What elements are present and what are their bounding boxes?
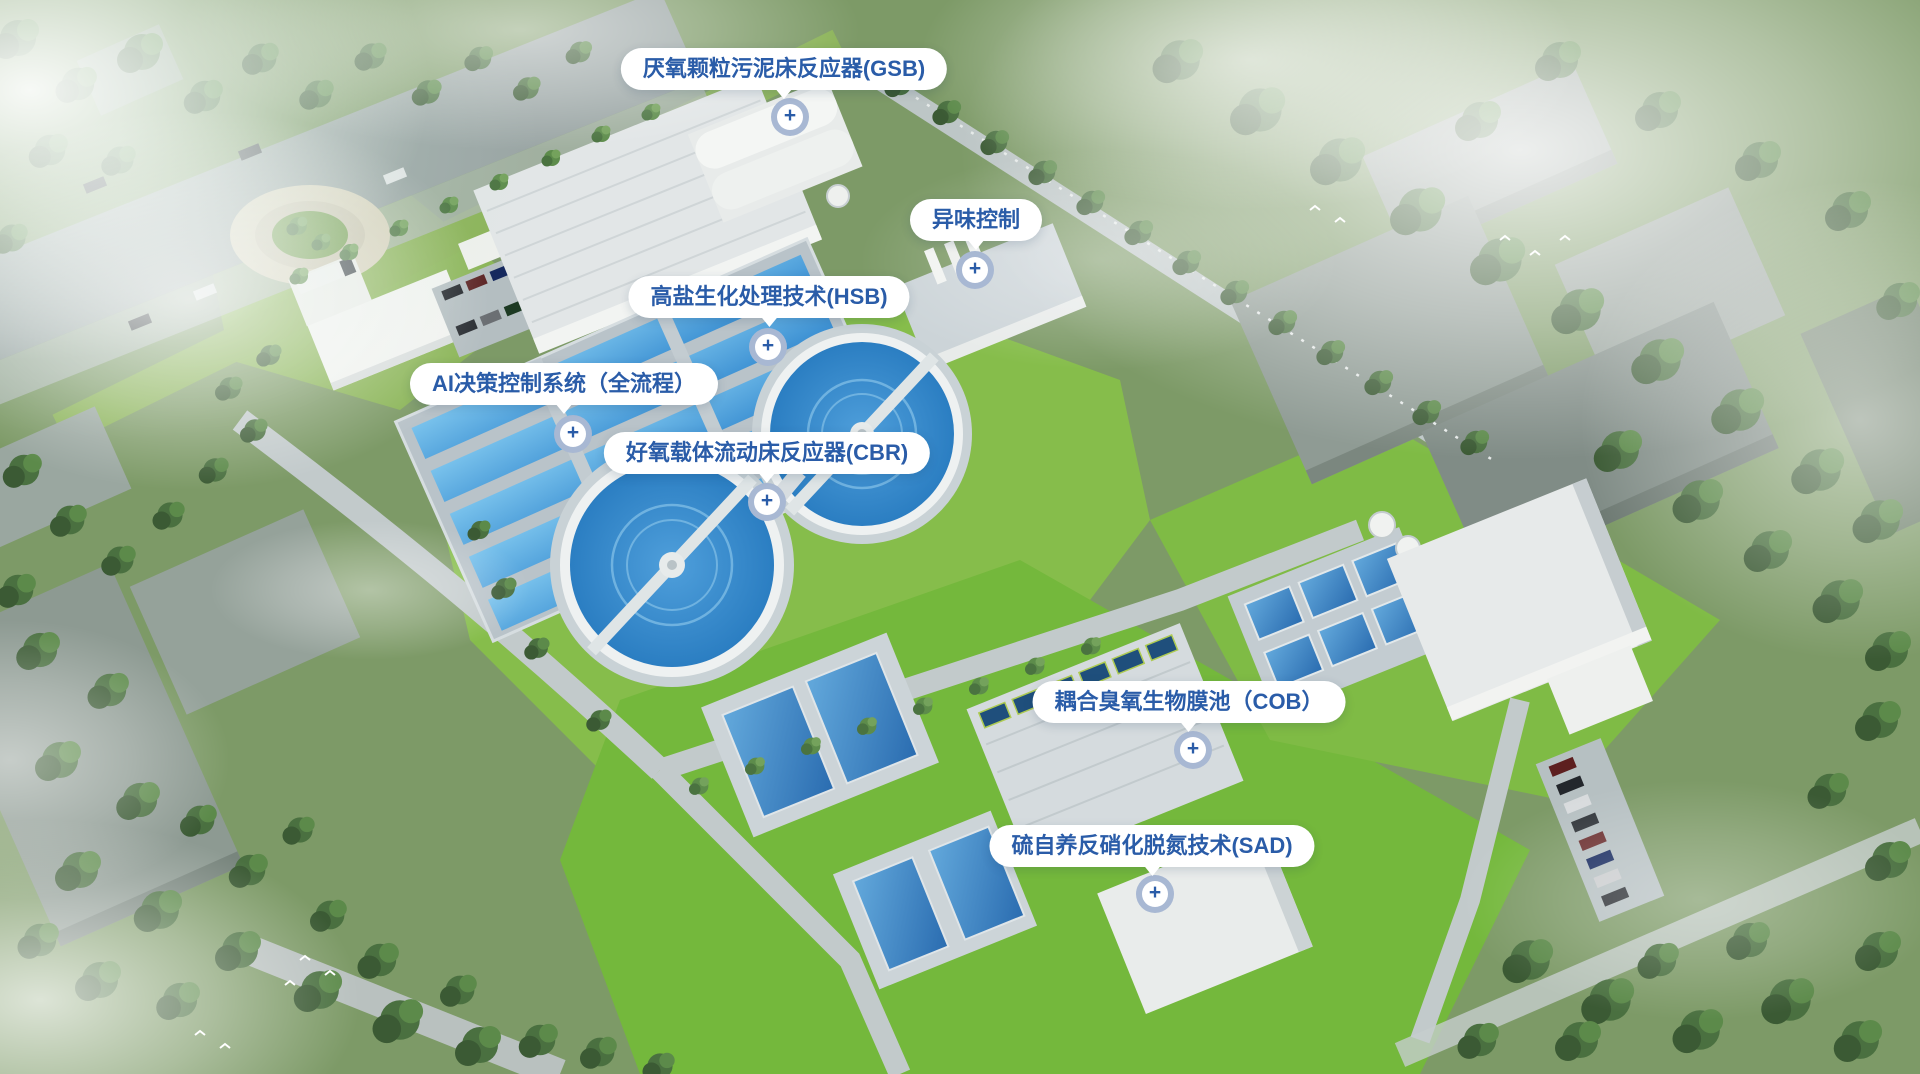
callout-marker-sad[interactable]: + (1136, 875, 1174, 913)
callout-marker-odor[interactable]: + (956, 251, 994, 289)
callout-label: AI决策控制系统（全流程） (432, 371, 696, 396)
callout-tail (760, 316, 778, 327)
callout-marker-hsb[interactable]: + (749, 328, 787, 366)
callout-label: 好氧载体流动床反应器(CBR) (626, 440, 908, 465)
callout-pill-gsb[interactable]: 厌氧颗粒污泥床反应器(GSB) (621, 48, 947, 90)
plant-3d-overview: 厌氧颗粒污泥床反应器(GSB)+异味控制+高盐生化处理技术(HSB)+AI决策控… (0, 0, 1920, 1074)
callout-tail (967, 239, 985, 250)
callout-pill-odor[interactable]: 异味控制 (910, 199, 1042, 241)
callout-pill-sad[interactable]: 硫自养反硝化脱氮技术(SAD) (989, 825, 1314, 867)
plus-icon: + (762, 334, 774, 358)
callout-label: 耦合臭氧生物膜池（COB） (1055, 689, 1324, 714)
callout-pill-ai[interactable]: AI决策控制系统（全流程） (410, 363, 718, 405)
callout-label: 异味控制 (932, 207, 1020, 232)
plus-icon: + (784, 104, 796, 128)
callout-marker-cob[interactable]: + (1174, 731, 1212, 769)
callout-label: 厌氧颗粒污泥床反应器(GSB) (643, 56, 925, 81)
plus-icon: + (761, 489, 773, 513)
callout-marker-gsb[interactable]: + (771, 98, 809, 136)
callout-marker-cbr[interactable]: + (748, 483, 786, 521)
callout-label: 高盐生化处理技术(HSB) (650, 284, 887, 309)
callout-marker-ai[interactable]: + (554, 415, 592, 453)
callout-pill-cbr[interactable]: 好氧载体流动床反应器(CBR) (604, 432, 930, 474)
plus-icon: + (1187, 737, 1199, 761)
plus-icon: + (567, 421, 579, 445)
callout-tail (775, 88, 793, 99)
callout-pill-cob[interactable]: 耦合臭氧生物膜池（COB） (1033, 681, 1346, 723)
callout-pill-hsb[interactable]: 高盐生化处理技术(HSB) (628, 276, 909, 318)
callout-label: 硫自养反硝化脱氮技术(SAD) (1011, 833, 1292, 858)
annotation-layer: 厌氧颗粒污泥床反应器(GSB)+异味控制+高盐生化处理技术(HSB)+AI决策控… (0, 0, 1920, 1074)
callout-tail (1143, 865, 1161, 876)
plus-icon: + (1149, 881, 1161, 905)
callout-tail (1180, 721, 1198, 732)
callout-tail (555, 403, 573, 414)
callout-tail (758, 472, 776, 483)
plus-icon: + (969, 257, 981, 281)
